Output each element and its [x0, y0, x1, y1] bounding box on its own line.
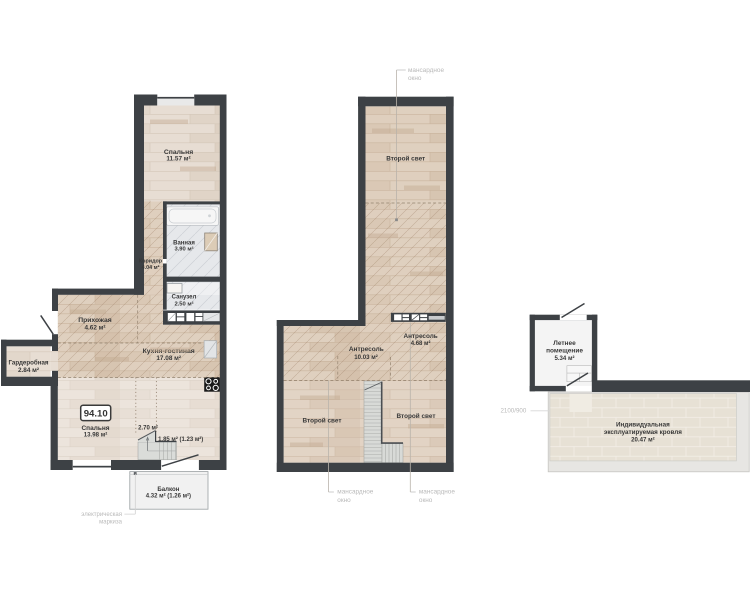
svg-text:4.68 м²: 4.68 м²: [411, 340, 431, 347]
svg-text:1.85 м² (1.23 м²): 1.85 м² (1.23 м²): [158, 436, 203, 443]
svg-text:3.90 м²: 3.90 м²: [174, 246, 193, 253]
svg-text:Второй свет: Второй свет: [397, 412, 436, 420]
svg-text:4.32 м² (1.26 м²): 4.32 м² (1.26 м²): [146, 493, 191, 500]
svg-text:2.70 м²: 2.70 м²: [138, 425, 158, 432]
svg-text:17.08 м²: 17.08 м²: [156, 355, 181, 362]
svg-text:10.03 м²: 10.03 м²: [354, 354, 377, 361]
svg-text:20.47 м²: 20.47 м²: [631, 436, 654, 443]
svg-text:Антресоль: Антресоль: [349, 346, 384, 353]
svg-text:Коридор: Коридор: [139, 259, 163, 265]
svg-text:11.57 м²: 11.57 м²: [166, 156, 190, 163]
svg-text:4.62 м²: 4.62 м²: [84, 325, 105, 332]
svg-text:Балкон: Балкон: [157, 486, 179, 493]
svg-text:электрическая: электрическая: [81, 512, 122, 518]
svg-text:94.10: 94.10: [84, 408, 108, 419]
svg-text:мансардное: мансардное: [337, 489, 373, 496]
svg-text:2.50 м²: 2.50 м²: [174, 300, 193, 307]
svg-text:помещение: помещение: [546, 347, 583, 354]
svg-text:мансардное: мансардное: [419, 489, 455, 496]
svg-text:эксплуатируемая кровля: эксплуатируемая кровля: [604, 429, 682, 436]
svg-text:2.84 м²: 2.84 м²: [18, 367, 39, 374]
svg-text:Санузел: Санузел: [172, 295, 197, 301]
svg-text:окно: окно: [408, 75, 422, 82]
svg-text:Гардеробная: Гардеробная: [8, 360, 48, 367]
svg-text:Антресоль: Антресоль: [403, 333, 437, 340]
svg-text:Второй свет: Второй свет: [303, 417, 342, 425]
svg-text:Индивидуальная: Индивидуальная: [616, 422, 670, 429]
svg-text:окно: окно: [337, 497, 351, 504]
svg-text:Второй свет: Второй свет: [386, 154, 425, 162]
svg-text:Прихожая: Прихожая: [78, 317, 112, 324]
svg-text:5.34 м²: 5.34 м²: [554, 355, 574, 362]
svg-text:маркиза: маркиза: [99, 520, 123, 526]
svg-text:Летнее: Летнее: [553, 340, 576, 347]
svg-text:окно: окно: [419, 497, 433, 504]
svg-text:мансардное: мансардное: [408, 67, 444, 74]
svg-text:4.04 м²: 4.04 м²: [142, 265, 160, 271]
svg-text:2100/900: 2100/900: [500, 408, 526, 415]
svg-text:13.98 м²: 13.98 м²: [84, 432, 107, 439]
